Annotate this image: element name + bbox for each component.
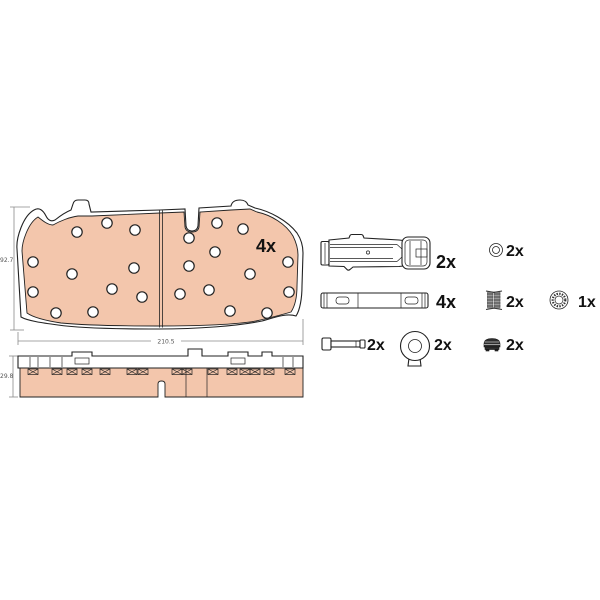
- grommet-with-tab-icon: [401, 332, 430, 367]
- serrated-cap-ring-icon: [550, 291, 568, 309]
- guide-bar-drawing: [321, 293, 428, 308]
- coil-spring-qty-label: 2x: [506, 294, 524, 311]
- brake-pad-side-view: [18, 349, 303, 397]
- washer-ring-icon: [490, 244, 503, 257]
- brake-pad-front-view: 4x: [17, 200, 303, 329]
- washer-qty-label: 2x: [506, 243, 524, 260]
- pad-friction-surface: [22, 209, 298, 326]
- grease-pack-icon: [484, 339, 500, 352]
- pad-quantity-label: 4x: [256, 236, 276, 256]
- coil-spring-pair-icon: [486, 291, 502, 310]
- side-friction-material: [20, 368, 303, 397]
- brake-pad-kit-diagram: 4x 92.7 210.5 29.8: [0, 0, 600, 600]
- grommet-qty-label: 2x: [434, 337, 452, 354]
- dim-thickness-label: 29.8: [0, 373, 14, 380]
- technical-drawing-canvas: 4x 92.7 210.5 29.8: [0, 0, 600, 600]
- cap-ring-qty-label: 1x: [578, 294, 596, 311]
- pad-retaining-spring-drawing: [321, 235, 430, 271]
- dim-height-label: 92.7: [0, 257, 14, 264]
- pin-bolt-qty-label: 2x: [367, 337, 385, 354]
- side-backing-plate: [18, 349, 303, 368]
- hardware-parts-list: 2x 2x 4x: [321, 235, 596, 367]
- retaining-spring-qty-label: 2x: [436, 252, 456, 272]
- dim-width-label: 210.5: [157, 339, 174, 346]
- guide-bar-qty-label: 4x: [436, 292, 456, 312]
- retainer-pin-bolt-drawing: [322, 338, 365, 350]
- grease-pack-qty-label: 2x: [506, 337, 524, 354]
